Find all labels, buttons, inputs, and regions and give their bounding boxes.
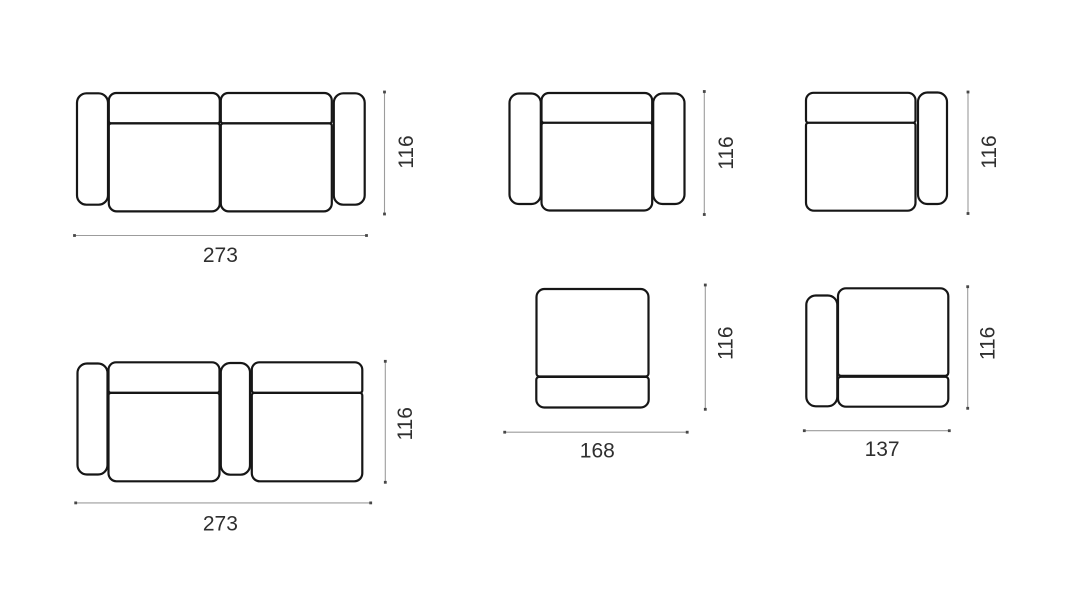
- svg-text:137: 137: [865, 438, 900, 461]
- svg-text:273: 273: [203, 512, 238, 535]
- svg-text:116: 116: [977, 327, 1000, 360]
- svg-text:116: 116: [715, 326, 738, 359]
- svg-text:168: 168: [580, 439, 615, 462]
- svg-text:273: 273: [203, 244, 238, 267]
- svg-text:116: 116: [394, 407, 417, 440]
- svg-text:116: 116: [978, 135, 1001, 168]
- svg-text:116: 116: [395, 135, 418, 168]
- svg-text:116: 116: [715, 136, 738, 169]
